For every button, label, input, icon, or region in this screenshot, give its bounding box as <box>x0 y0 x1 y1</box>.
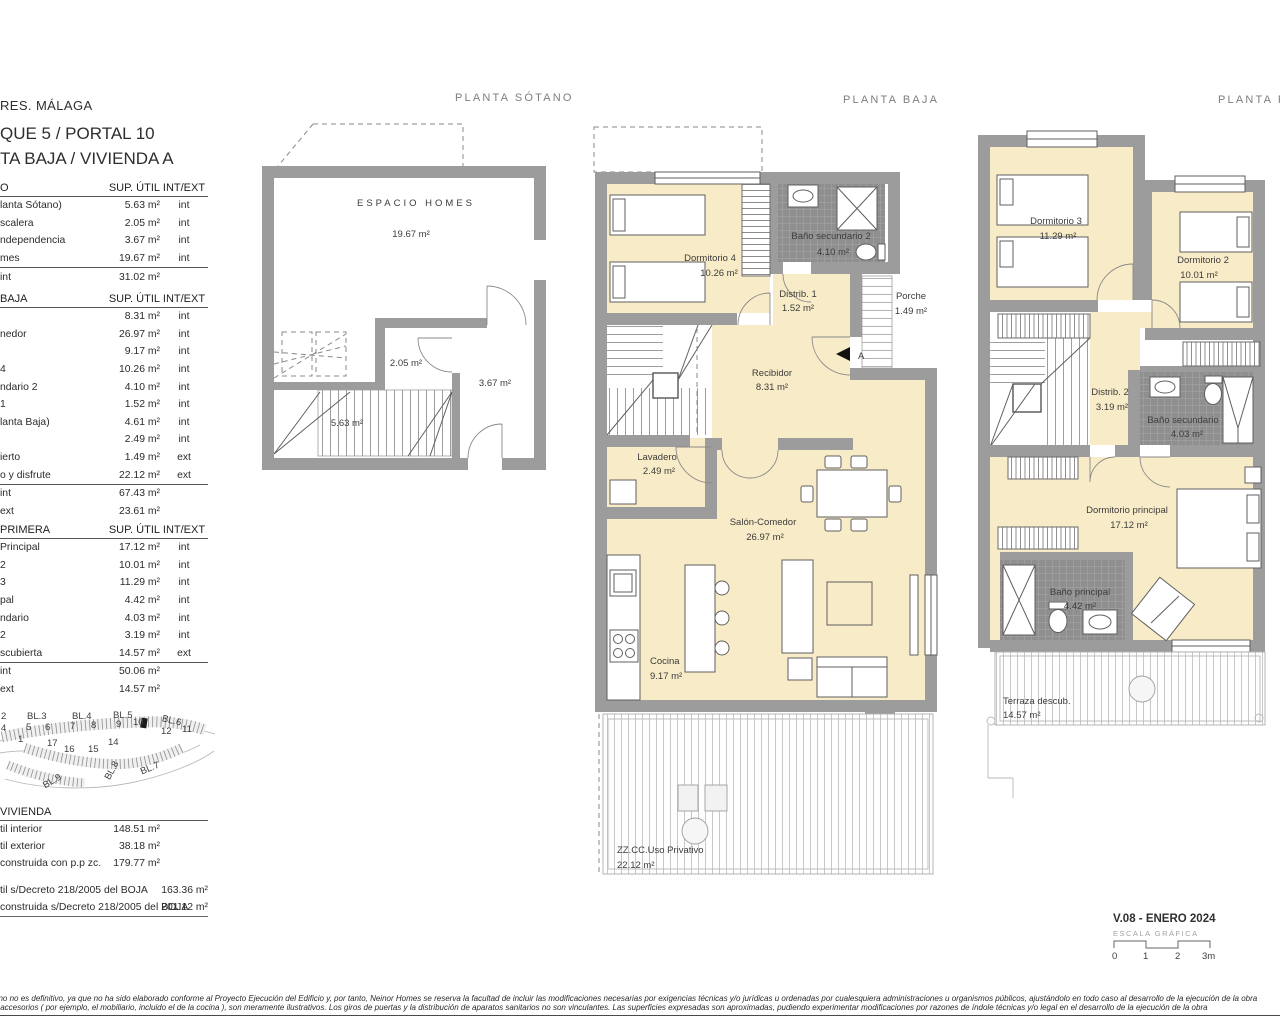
site-block-label: 2 <box>1 711 6 722</box>
table-row: construida s/Decreto 218/2005 del BOJA20… <box>0 899 208 916</box>
site-unit-number: 7 <box>70 721 75 732</box>
area-label: 2.49 m² <box>643 466 675 477</box>
table-row: ndario4.03 m²int <box>0 609 208 627</box>
plan-primera: Dormitorio 3 11.29 m² Dormitorio 2 10.01… <box>975 118 1280 818</box>
scale-tick: 3m <box>1202 951 1215 962</box>
area-label: 3.19 m² <box>1096 402 1128 413</box>
table-row: til exterior38.18 m² <box>0 838 208 855</box>
table-row: 2.49 m²int <box>0 431 208 449</box>
roof-overhang-dashed <box>278 124 463 166</box>
table-header: BAJASUP. ÚTILINT/EXT <box>0 293 208 308</box>
area-label: 17.12 m² <box>1110 520 1148 531</box>
site-unit-number: 6 <box>45 722 50 733</box>
version-label: V.08 - ENERO 2024 <box>1113 913 1216 925</box>
header-planta-sotano: PLANTA SÓTANO <box>455 92 574 104</box>
table-row: nedor26.97 m²int <box>0 326 208 344</box>
window <box>925 575 937 655</box>
site-unit-number: 10 <box>133 717 144 728</box>
site-unit-number: 1 <box>18 734 23 745</box>
room-label: Distrib. 1 <box>779 289 816 300</box>
room-label: Lavadero <box>637 452 677 463</box>
table-header: VIVIENDA <box>0 806 208 821</box>
room-label: Cocina <box>650 656 680 667</box>
area-label: 14.57 m² <box>1003 710 1041 721</box>
area-label: 26.97 m² <box>746 532 784 543</box>
table-row: scubierta14.57 m²ext <box>0 645 208 663</box>
stair-dashed <box>274 332 346 378</box>
room-label: Salón-Comedor <box>730 517 797 528</box>
bottom-rule <box>0 1015 1280 1016</box>
table-row: 311.29 m²int <box>0 574 208 592</box>
table-row: til s/Decreto 218/2005 del BOJA163.36 m² <box>0 882 208 899</box>
header-planta-baja: PLANTA BAJA <box>843 94 939 106</box>
scale-tick: 2 <box>1175 951 1180 962</box>
header-planta-primera: PLANTA PRIMERA <box>1218 94 1280 106</box>
area-label: 4.10 m² <box>817 247 849 258</box>
table-row: til interior148.51 m² <box>0 821 208 838</box>
room-label: Baño principal <box>1050 587 1110 598</box>
room-label: Baño secundario 2 <box>791 231 870 242</box>
area-label: 1.52 m² <box>782 303 814 314</box>
room-label: Terraza descub. <box>1003 696 1071 707</box>
area-label: 9.17 m² <box>650 671 682 682</box>
area-label: 10.01 m² <box>1180 270 1218 281</box>
room-label: Porche <box>896 291 926 302</box>
site-unit-number: 11 <box>182 724 192 735</box>
unit-title: TA BAJA / VIVIENDA A <box>0 149 174 169</box>
site-unit-number: 12 <box>161 726 172 737</box>
area-label: 19.67 m² <box>392 229 430 240</box>
table-row: pal4.42 m²int <box>0 592 208 610</box>
porch-steps <box>862 276 892 368</box>
area-label: 22.12 m² <box>617 860 655 871</box>
room-label: Dormitorio 3 <box>1030 216 1082 227</box>
table-total-row: ext23.61 m² <box>0 503 208 521</box>
table-row: lanta Sótano)5.63 m²int <box>0 197 208 215</box>
site-unit-number: 17 <box>47 738 58 749</box>
room-label-espacio-homes: ESPACIO HOMES <box>357 198 475 209</box>
area-label-escalera-sotano: 5.63 m² <box>331 418 363 429</box>
floorplan-sheet: PLANTA SÓTANO PLANTA BAJA PLANTA PRIMERA… <box>0 0 1280 1024</box>
wardrobe <box>742 184 770 276</box>
washing-machine <box>610 480 636 504</box>
door-opening <box>534 240 546 280</box>
table-header: PRIMERASUP. ÚTILINT/EXT <box>0 524 208 539</box>
table-row: scalera2.05 m²int <box>0 215 208 233</box>
site-unit-number: 16 <box>64 744 75 755</box>
table-row: 23.19 m²int <box>0 627 208 645</box>
svg-text:A: A <box>858 351 865 362</box>
room-label: Baño secundario <box>1147 415 1218 426</box>
project-title: RES. MÁLAGA <box>0 98 93 113</box>
table-row: ndependencia3.67 m²int <box>0 232 208 250</box>
table-row: 410.26 m²int <box>0 361 208 379</box>
area-label-escalera: 2.05 m² <box>390 358 422 369</box>
plan-sotano: ESPACIO HOMES 19.67 m² 2.05 m² 3.67 m² 5… <box>258 120 558 495</box>
vivienda-table: VIVIENDA til interior148.51 m² til exter… <box>0 806 208 917</box>
room-label: Dormitorio 2 <box>1177 255 1229 266</box>
door-opening <box>468 458 502 470</box>
graphic-scale-bar: 0 1 2 3m <box>1112 938 1222 964</box>
room-label: Dormitorio principal <box>1086 505 1168 516</box>
room-label: Recibidor <box>752 368 792 379</box>
window <box>655 172 760 184</box>
table-total-row: ext14.57 m² <box>0 681 208 699</box>
disclaimer-line2: s accesorios ( por ejemplo, el mobiliari… <box>0 1003 1280 1012</box>
terrace <box>987 652 1265 798</box>
area-label: 11.29 m² <box>1040 231 1077 242</box>
table-row: 11.52 m²int <box>0 396 208 414</box>
area-table-primera: PRIMERASUP. ÚTILINT/EXT Principal17.12 m… <box>0 524 208 698</box>
table-total-row: int67.43 m² <box>0 485 208 503</box>
table-row: o y disfrute22.12 m²ext <box>0 466 208 484</box>
table-row: lanta Baja)4.61 m²int <box>0 414 208 432</box>
area-label-independencia: 3.67 m² <box>479 378 511 389</box>
area-label: 4.03 m² <box>1171 429 1203 440</box>
block-portal-title: QUE 5 / PORTAL 10 <box>0 124 155 144</box>
area-label: 4.42 m² <box>1064 601 1096 612</box>
site-block-label: BL.3 <box>27 711 47 722</box>
table-row: mes19.67 m²int <box>0 250 208 268</box>
scale-tick: 0 <box>1112 951 1117 962</box>
site-unit-number: 15 <box>88 744 99 755</box>
table-row: ierto1.49 m²ext <box>0 449 208 467</box>
area-table-baja: BAJASUP. ÚTILINT/EXT 8.31 m²int nedor26.… <box>0 293 208 520</box>
area-label: 10.26 m² <box>700 268 738 279</box>
table-header: OSUP. ÚTILINT/EXT <box>0 182 208 197</box>
disclaimer-line1: ano no es definitivo, ya que no ha sido … <box>0 994 1280 1003</box>
site-unit-number: 8 <box>91 720 96 731</box>
area-table-sotano: OSUP. ÚTILINT/EXT lanta Sótano)5.63 m²in… <box>0 182 208 286</box>
site-plan: 2 BL.3 BL.4 BL.5 BL.6 BL.7 BL.8 BL.9 1 4… <box>0 701 215 796</box>
room-label: Dormitorio 4 <box>684 253 736 264</box>
table-total-row: int31.02 m² <box>0 268 208 286</box>
site-unit-number: 5 <box>26 722 31 733</box>
scale-tick: 1 <box>1143 951 1148 962</box>
site-unit-number: 14 <box>108 737 119 748</box>
roof-overhang-dashed <box>594 127 762 172</box>
site-building-row-middle <box>25 748 182 764</box>
table-row: Principal17.12 m²int <box>0 539 208 557</box>
scale-label: ESCALA GRÁFICA <box>1113 929 1199 938</box>
table-row: construida con p.p zc.179.77 m² <box>0 855 208 872</box>
room-label: Distrib. 2 <box>1091 387 1128 398</box>
site-unit-number: 9 <box>116 719 121 730</box>
table-row: 210.01 m²int <box>0 557 208 575</box>
table-row: ndario 24.10 m²int <box>0 378 208 396</box>
staircase <box>990 338 1090 447</box>
area-label: 8.31 m² <box>756 382 788 393</box>
table-row: 8.31 m²int <box>0 308 208 326</box>
table-total-row: int50.06 m² <box>0 663 208 681</box>
site-unit-number: 4 <box>1 723 6 734</box>
table-row: 9.17 m²int <box>0 343 208 361</box>
room-label: ZZ.CC.Uso Privativo <box>617 845 704 856</box>
staircase <box>607 325 712 435</box>
area-label: 1.49 m² <box>895 306 927 317</box>
